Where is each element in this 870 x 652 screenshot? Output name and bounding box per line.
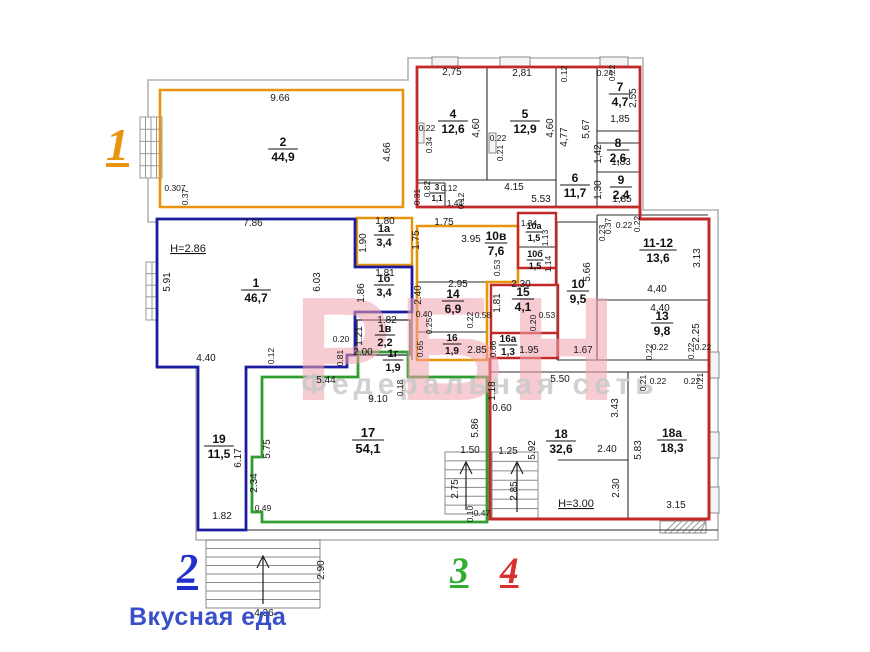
height-mark: H=3.00 [558, 498, 594, 510]
dimension-label: 1.25 [498, 446, 518, 457]
wall-niche [432, 57, 458, 66]
room-area: 46,7 [244, 291, 268, 305]
room-number: 18а [662, 426, 682, 440]
dimension-label: 0.20 [333, 334, 350, 344]
dimension-label: 2.34 [249, 473, 260, 493]
zone-number-2: 2 [177, 549, 198, 591]
room-area: 1,1 [431, 194, 443, 203]
dimension-label: 0.25 [424, 317, 434, 334]
dimension-label: 0.18 [395, 379, 405, 396]
room-number: 10 [571, 277, 585, 291]
dimension-label: 0.22 [607, 64, 617, 81]
dimension-label: 0.22 [632, 215, 642, 232]
dimension-label: 4.66 [382, 142, 393, 162]
dimension-label: 0.81 [335, 349, 345, 366]
room-area: 44,9 [271, 150, 295, 164]
room-number: 5 [522, 107, 529, 121]
room-area: 1,3 [501, 347, 515, 358]
room-number: 1г [388, 348, 399, 360]
dimension-label: 0.34 [424, 136, 434, 153]
dimension-label: 4.40 [196, 353, 216, 364]
dimension-label: 9.10 [368, 394, 388, 405]
dimension-label: 1,44 [447, 198, 464, 208]
room-area: 11,5 [208, 447, 231, 461]
dimension-label: 2.85 [467, 345, 487, 356]
dimension-label: 2,75 [442, 67, 462, 78]
height-mark: H=2.86 [170, 243, 206, 255]
zone-number-4: 4 [500, 553, 519, 590]
room-area: 2,4 [613, 188, 630, 202]
room-area: 4,7 [612, 95, 629, 109]
dimension-label: 5.75 [262, 439, 273, 459]
dimension-label: 2.75 [450, 479, 461, 499]
room-area: 4,1 [515, 300, 532, 314]
room-area: 3,4 [376, 287, 392, 299]
room-number: 18 [554, 427, 568, 441]
dimension-label: 5,67 [581, 119, 592, 139]
hatched-shaft [660, 521, 706, 533]
dimension-label: 1.50 [460, 445, 480, 456]
dimension-label: 0.37 [603, 217, 613, 234]
room-number: 11-12 [643, 236, 673, 250]
room-area: 1,5 [529, 261, 542, 271]
room-number: 19 [212, 432, 226, 446]
dimension-label: 6.17 [233, 448, 244, 468]
dimension-label: 2.40 [413, 285, 424, 305]
dimension-label: 2,55 [628, 88, 639, 108]
room-number: 1 [253, 276, 260, 290]
dimension-label: 3.13 [692, 248, 703, 268]
wall-niche [710, 432, 719, 458]
dimension-label: 1.81 [492, 293, 503, 313]
room-number: 7 [617, 80, 624, 94]
room-number: 14 [446, 287, 460, 301]
dimension-label: 1.21 [354, 326, 365, 346]
dimension-label: 0.47 [474, 508, 491, 518]
room-area: 7,6 [488, 244, 505, 258]
dimension-label: 2,81 [512, 68, 532, 79]
dimension-label: 4,77 [559, 127, 570, 147]
brand-text: Вкусная еда [129, 603, 286, 632]
dimension-label: 0.21 [495, 144, 505, 161]
dimension-label: 2.85 [509, 481, 520, 501]
room-number: 13 [655, 309, 669, 323]
wall-niche [500, 57, 530, 66]
dimension-label: 1,85 [610, 114, 630, 125]
dimension-label: 5.83 [633, 440, 644, 460]
room-number: 6 [572, 171, 579, 185]
dimension-label: 0.37 [180, 188, 190, 205]
dimension-label: 2.25 [691, 323, 702, 343]
dimension-label: 3.43 [610, 398, 621, 418]
dimension-label: 0.40 [416, 309, 433, 319]
dimension-label: 0.31 [412, 188, 422, 205]
dimension-label: 6.03 [312, 272, 323, 292]
room-area: 32,6 [549, 442, 573, 456]
floor-plan: РБНФедеральная сеть9.664.660.3070.372,75… [0, 0, 870, 652]
dimension-label: 1.75 [434, 217, 454, 228]
room-number: 1б [378, 273, 391, 285]
room-number: 2 [280, 135, 287, 149]
dimension-label: 0.21 [638, 374, 648, 391]
room-area: 1,5 [528, 233, 541, 243]
dimension-label: 0.22 [695, 342, 712, 352]
dimension-label: 5.91 [162, 272, 173, 292]
dimension-label: 5.92 [527, 440, 538, 460]
dimension-label: 0.22 [419, 123, 436, 133]
zone-number-3: 3 [450, 553, 469, 590]
room-area: 18,3 [660, 441, 684, 455]
room-area: 13,6 [646, 251, 670, 265]
dimension-label: 7.86 [243, 218, 263, 229]
wall-niche [600, 57, 628, 66]
room-area: 1,9 [385, 362, 400, 374]
dimension-label: 0.65 [415, 340, 425, 357]
room-number: 16а [500, 334, 517, 345]
dimension-label: 1.18 [487, 381, 498, 401]
dimension-label: 0.66 [488, 340, 498, 357]
dimension-label: 0.53 [492, 259, 502, 276]
zone-number-1: 1 [106, 122, 129, 168]
dimension-label: 0.22 [465, 311, 475, 328]
dimension-label: 1.95 [519, 345, 539, 356]
dimension-label: 0.22 [652, 342, 669, 352]
dimension-label: 0.20 [528, 314, 538, 331]
room-area: 54,1 [355, 441, 380, 456]
dimension-label: 0.21 [695, 372, 705, 389]
room-number: 1а [378, 223, 391, 235]
wall-niche [710, 487, 719, 513]
dimension-label: 0.49 [255, 503, 272, 513]
dimension-label: 9.66 [270, 93, 290, 104]
room-number: 8 [615, 136, 622, 150]
dimension-label: 5.44 [316, 375, 336, 386]
room-area: 2,6 [610, 151, 627, 165]
room-area: 1,9 [445, 346, 459, 357]
room-number: 9 [618, 173, 625, 187]
room-number: 3 [435, 183, 440, 192]
dimension-label: 2.00 [353, 347, 373, 358]
room-number: 10а [526, 221, 542, 231]
room-number: 17 [361, 425, 375, 440]
dimension-label: 2.40 [597, 444, 617, 455]
dimension-label: 5.53 [531, 194, 551, 205]
dimension-label: 2.30 [611, 478, 622, 498]
dimension-label: 1.67 [573, 345, 593, 356]
room-area: 3,4 [376, 237, 392, 249]
dimension-label: 0.22 [490, 133, 507, 143]
dimension-label: 1.75 [411, 230, 422, 250]
dimension-label: 4,40 [647, 284, 667, 295]
room-area: 12,6 [441, 122, 465, 136]
floorplan-page: РБНФедеральная сеть9.664.660.3070.372,75… [0, 0, 870, 652]
room-area: 9,8 [654, 324, 671, 338]
dimension-label: 0.60 [492, 403, 512, 414]
dimension-label: 1.86 [356, 283, 367, 303]
dimension-label: 0.12 [559, 65, 569, 82]
dimension-label: 0.22 [616, 220, 633, 230]
dimension-label: 5.86 [470, 418, 481, 438]
room-area: 6,9 [445, 302, 462, 316]
room-number: 16 [446, 333, 458, 344]
dimension-label: 1,42 [593, 144, 604, 164]
dimension-label: 1.82 [212, 511, 232, 522]
room-number: 10б [527, 249, 543, 259]
dimension-label: 2.90 [316, 560, 327, 580]
dimension-label: 1.14 [543, 255, 553, 272]
dimension-label: 0.12 [266, 347, 276, 364]
dimension-label: 4.15 [504, 182, 524, 193]
room-area: 9,5 [570, 292, 587, 306]
room-number: 4 [450, 107, 457, 121]
dimension-label: 0.22 [650, 376, 667, 386]
dimension-label: 3.15 [666, 500, 686, 511]
room-area: 12,9 [513, 122, 537, 136]
dimension-label: 0.53 [539, 310, 556, 320]
room-number: 1в [379, 323, 392, 335]
room-number: 15 [516, 285, 530, 299]
wall-niche [710, 352, 719, 378]
dimension-label: 0.12 [441, 183, 458, 193]
room-number: 10в [486, 229, 507, 243]
watermark-small: Федеральная сеть [301, 368, 658, 401]
dimension-label: 3.95 [461, 234, 481, 245]
dimension-label: 5.50 [550, 374, 570, 385]
dimension-label: 0.22 [644, 343, 654, 360]
room-area: 11,7 [564, 186, 587, 200]
dimension-label: 4,60 [471, 118, 482, 138]
dimension-label: 1.90 [358, 233, 369, 253]
dimension-label: 4,60 [545, 118, 556, 138]
dimension-label: 1,30 [593, 180, 604, 200]
dimension-label: 0.58 [475, 310, 492, 320]
